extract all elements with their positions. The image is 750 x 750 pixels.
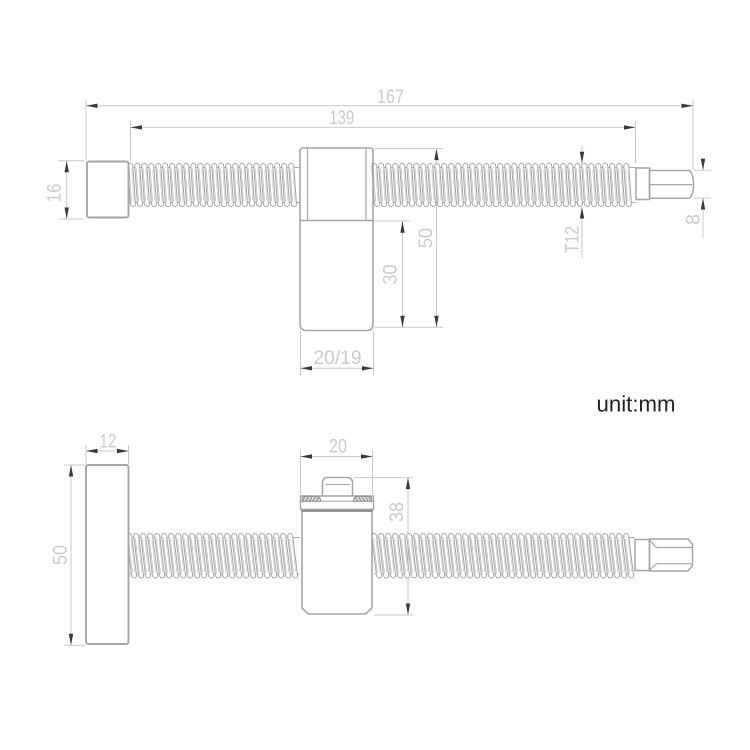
svg-text:20: 20 [329, 436, 347, 458]
svg-text:T12: T12 [562, 226, 584, 253]
svg-text:139: 139 [329, 107, 354, 129]
svg-text:20/19: 20/19 [314, 347, 362, 369]
svg-text:50: 50 [415, 228, 437, 248]
svg-text:38: 38 [386, 502, 408, 522]
svg-text:12: 12 [100, 431, 117, 453]
svg-text:unit:mm: unit:mm [597, 392, 676, 417]
svg-text:30: 30 [380, 264, 402, 284]
svg-text:50: 50 [50, 545, 72, 565]
svg-text:16: 16 [44, 184, 66, 203]
svg-text:167: 167 [377, 86, 404, 108]
svg-text:8: 8 [683, 214, 705, 225]
